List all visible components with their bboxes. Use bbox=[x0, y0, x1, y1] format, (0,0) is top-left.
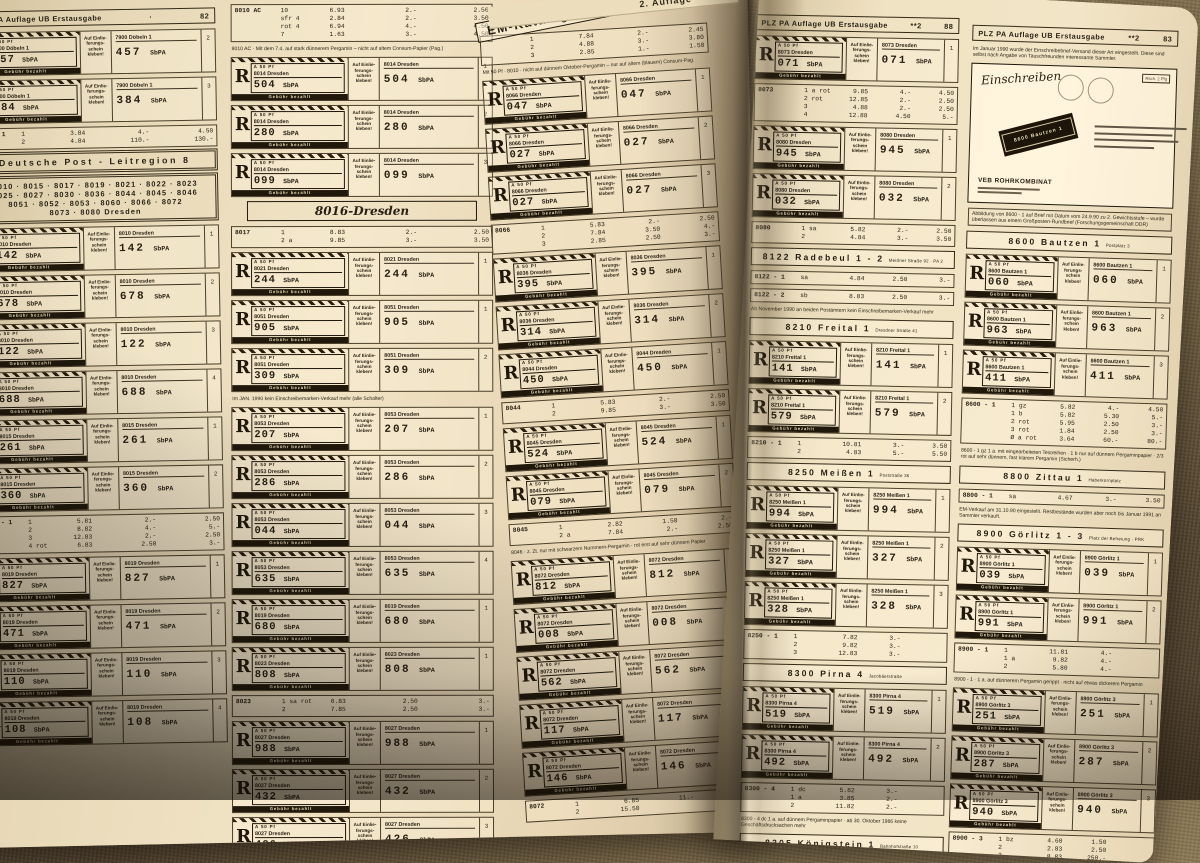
price-rows: 12.821.502.-2 a7.842.-2.50 bbox=[559, 514, 734, 540]
copy-city: 8045 Dresden bbox=[641, 421, 713, 432]
price-grade: 2 a bbox=[559, 530, 591, 540]
grade-mark: 4 bbox=[479, 552, 493, 594]
label-copy: 8036 Dresden314 SbPA bbox=[629, 295, 711, 342]
label-rate: A 50 Pf bbox=[0, 378, 79, 384]
section-heading: 8800 Zittau 1 Haberkornplatz bbox=[959, 465, 1165, 489]
price-mint: 3.- bbox=[1072, 494, 1116, 503]
label-number: 027 SbPA bbox=[512, 194, 585, 209]
copy-unit: SbPA bbox=[419, 837, 435, 844]
registration-label: RA 50 Pf8036 Dresden314 SbPAGebühr bezah… bbox=[497, 302, 601, 350]
left-column-3: EM-Katalogisierung**2 8817.842.-2.4524.8… bbox=[478, 0, 755, 843]
copy-number: 457 SbPA bbox=[116, 46, 197, 59]
price-grade: sa bbox=[1009, 493, 1041, 502]
label-number: 287 SbPA bbox=[973, 759, 1036, 772]
catalog-entry: RA 50 Pf7900 Döbeln 1384 SbPAGebühr beza… bbox=[0, 76, 217, 124]
price-table: 8015 - 115.812.-2.5028.824.-5.-312.832.-… bbox=[0, 512, 225, 554]
price-mint: 2.50 bbox=[92, 540, 156, 549]
label-face: A 50 Pf8300 Pirna 4519 SbPA bbox=[762, 692, 830, 723]
price-rows: 1 a rot9.854.-4.502 rot12.852.-2.5034.88… bbox=[804, 87, 955, 122]
address-lines bbox=[1094, 126, 1191, 155]
copy-unit: SbPA bbox=[154, 293, 170, 300]
registration-label: RA 50 Pf8051 Dresden309 SbPAGebühr bezah… bbox=[232, 349, 349, 391]
copy-city: 8080 Dresden bbox=[880, 133, 938, 141]
postmark-circle bbox=[1087, 77, 1114, 104]
r-letter: R bbox=[236, 559, 251, 587]
grade-mark: 2 bbox=[1145, 601, 1160, 643]
r-letter: R bbox=[235, 260, 250, 288]
grade-mark: 1 bbox=[715, 416, 731, 459]
section-subtitle: Bahnhofstraße 10 bbox=[880, 844, 918, 850]
page-header: PLZ PA Auflage UB Erstausgabe**288 bbox=[755, 14, 959, 34]
catalog-entry: RA 50 Pf8036 Dresden395 SbPAGebühr bezah… bbox=[493, 245, 723, 302]
copy-unit: SbPA bbox=[907, 508, 923, 515]
registration-label: RA 50 Pf8900 Görlitz 3287 SbPAGebühr bez… bbox=[951, 736, 1044, 781]
grade-mark: 2 bbox=[478, 349, 492, 391]
copy-city: 8014 Dresden bbox=[384, 110, 474, 117]
price-rows: sa4.673.-3.50 bbox=[1009, 493, 1161, 506]
label-unit: SbPA bbox=[26, 252, 42, 259]
label-paid-bar: Gebühr bezahlt bbox=[233, 758, 349, 764]
catalog-entry: RA 50 Pf8010 Dresden122 SbPAGebühr bezah… bbox=[0, 320, 221, 368]
copy-unit: SbPA bbox=[159, 575, 175, 582]
copy-unit: SbPA bbox=[419, 368, 435, 375]
copy-number: 812 SbPA bbox=[649, 566, 721, 582]
copy-number: 309 SbPA bbox=[384, 365, 474, 377]
catalog-entry: RA 50 Pf8010 Dresden142 SbPAGebühr bezah… bbox=[0, 224, 220, 272]
registration-label-tilted: 8600 Bautzen 1 bbox=[998, 113, 1078, 157]
price-date: 7.85 bbox=[314, 706, 346, 714]
registration-label: RA 50 Pf8044 Dresden450 SbPAGebühr bezah… bbox=[499, 350, 603, 398]
copy-city: 8072 Dresden bbox=[648, 554, 720, 565]
price-code: 8080 bbox=[755, 224, 801, 241]
catalog-entry: RA 50 Pf8036 Dresden314 SbPAGebühr bezah… bbox=[496, 293, 726, 350]
copy-unit: SbPA bbox=[684, 570, 700, 578]
copy-unit: SbPA bbox=[151, 97, 167, 104]
price-grade: 10 bbox=[281, 7, 313, 15]
label-city: 8053 Dresden bbox=[254, 469, 342, 476]
label-number: 286 SbPA bbox=[254, 478, 342, 489]
grade-mark: 2 bbox=[210, 603, 225, 645]
sticker-instruction: Auf Einlie- ferungs- schein kleben! bbox=[349, 408, 380, 450]
registration-label: RA 50 Pf8073 Dresden071 SbPAGebühr bezah… bbox=[755, 36, 847, 80]
sticker-instruction: Auf Einlie- ferungs- schein kleben! bbox=[85, 275, 117, 318]
catalog-entry: RA 50 Pf8019 Dresden680 SbPAGebühr bezah… bbox=[232, 599, 494, 643]
catalog-entry: RA 50 Pf8053 Dresden635 SbPAGebühr bezah… bbox=[232, 551, 494, 595]
label-unit: SbPA bbox=[549, 328, 565, 336]
catalog-entry: RA 50 Pf8600 Bautzen 1963 SbPAGebühr bez… bbox=[963, 302, 1170, 352]
registration-label: RA 50 Pf8300 Pirna 4519 SbPAGebühr bezah… bbox=[743, 687, 835, 731]
registration-label: RA 50 Pf8900 Görlitz 3251 SbPAGebühr bez… bbox=[953, 688, 1046, 733]
page-right: PLZ PA Auflage UB Erstausgabe**288RA 50 … bbox=[713, 0, 1199, 863]
catalog-entry: RA 50 Pf8900 Görlitz 3287 SbPAGebühr bez… bbox=[950, 735, 1157, 785]
copy-city: 8900 Görlitz 3 bbox=[1079, 744, 1138, 753]
label-unit: SbPA bbox=[284, 432, 300, 439]
label-unit: SbPA bbox=[1003, 762, 1019, 769]
copy-city: 8014 Dresden bbox=[384, 62, 474, 69]
registration-label: RA 50 Pf8036 Dresden395 SbPAGebühr bezah… bbox=[494, 254, 598, 302]
label-unit: SbPA bbox=[284, 624, 300, 631]
price-used: 3.50 bbox=[908, 235, 951, 244]
copy-number: 940 SbPA bbox=[1077, 804, 1137, 818]
grade-mark: 2 bbox=[200, 29, 215, 71]
copy-number: 471 SbPA bbox=[126, 620, 207, 633]
label-copy: 8045 Dresden524 SbPA bbox=[636, 417, 718, 464]
copy-number: 827 SbPA bbox=[125, 572, 206, 585]
label-paid-bar: Gebühr bezahlt bbox=[951, 772, 1042, 781]
label-face: A 50 Pf8053 Dresden207 SbPA bbox=[251, 413, 345, 443]
catalog-entry: RA 50 Pf8072 Dresden562 SbPAGebühr bezah… bbox=[516, 644, 746, 701]
sticker-instruction: Auf Einlie- ferungs- schein kleben! bbox=[836, 584, 868, 627]
price-row: 27.852.503.- bbox=[282, 706, 490, 714]
price-date: 3.64 bbox=[1042, 435, 1074, 444]
label-number: 450 SbPA bbox=[523, 372, 596, 387]
copy-city: 8900 Görlitz 1 bbox=[1083, 603, 1142, 612]
price-row: 71.633.-4.50 bbox=[281, 31, 489, 39]
label-city: 8053 Dresden bbox=[255, 565, 343, 572]
r-letter: R bbox=[748, 589, 764, 617]
label-unit: SbPA bbox=[23, 104, 39, 111]
label-paid-bar: Gebühr bezahlt bbox=[233, 588, 349, 594]
sender-line bbox=[978, 187, 1040, 191]
label-copy: 8023 Dresden808 SbPA bbox=[381, 648, 479, 690]
grade-mark: 3 bbox=[206, 321, 221, 363]
price-mint: 5.- bbox=[861, 449, 904, 458]
label-rate: A 50 Pf bbox=[771, 396, 833, 402]
copy-unit: SbPA bbox=[157, 437, 173, 444]
grade-mark: 1 bbox=[478, 301, 492, 343]
label-paid-bar: Gebühr bezahlt bbox=[232, 492, 348, 498]
registration-label: RA 50 Pf8250 Meißen 1327 SbPAGebühr beza… bbox=[746, 534, 838, 578]
label-number: 027 SbPA bbox=[509, 146, 582, 161]
label-city: 8019 Dresden bbox=[255, 613, 343, 620]
price-table: 7900 - 113.844.-4.5024.84110.-130.- bbox=[0, 124, 218, 150]
price-mint: 2.50 bbox=[346, 698, 418, 706]
handwritten-einschreiben: Einschreiben bbox=[981, 69, 1062, 88]
label-number: 207 SbPA bbox=[254, 430, 342, 441]
copy-unit: SbPA bbox=[418, 77, 434, 84]
copy-unit: SbPA bbox=[910, 363, 926, 370]
copy-unit: SbPA bbox=[1118, 571, 1134, 578]
copy-number: 142 SbPA bbox=[119, 242, 200, 255]
price-code: 8305 bbox=[743, 859, 789, 863]
label-face: A 50 Pf8010 Dresden688 SbPA bbox=[0, 377, 83, 409]
price-rows: 1 bz4.601.5022.832.5038.83250.- bbox=[998, 836, 1151, 863]
catalog-entry: RA 50 Pf8066 Dresden027 SbPAGebühr bezah… bbox=[488, 163, 718, 220]
copy-unit: SbPA bbox=[689, 666, 705, 674]
price-mint: 2.50 bbox=[346, 706, 418, 714]
grade-mark: 1 bbox=[204, 225, 219, 267]
label-face: A 50 Pf8036 Dresden395 SbPA bbox=[513, 259, 593, 294]
copy-unit: SbPA bbox=[906, 556, 922, 563]
catalog-entry: RA 50 Pf8900 Görlitz 3940 SbPAGebühr bez… bbox=[949, 783, 1156, 833]
label-paid-bar: Gebühr bezahlt bbox=[232, 444, 348, 450]
copy-unit: SbPA bbox=[419, 741, 435, 748]
label-city: 8250 Meißen 1 bbox=[767, 596, 829, 604]
label-copy: 8014 Dresden504 SbPA bbox=[380, 58, 478, 100]
label-paid-bar: Gebühr bezahlt bbox=[232, 94, 348, 100]
copy-number: 492 SbPA bbox=[868, 754, 926, 767]
registration-label: RA 50 Pf8600 Bautzen 1060 SbPAGebühr bez… bbox=[966, 255, 1059, 300]
copy-number: 562 SbPA bbox=[655, 662, 727, 678]
label-face: A 50 Pf8010 Dresden678 SbPA bbox=[0, 281, 81, 313]
catalog-entry: RA 50 Pf8900 Görlitz 1039 SbPAGebühr bez… bbox=[956, 546, 1163, 596]
registration-label: RA 50 Pf8072 Dresden562 SbPAGebühr bezah… bbox=[517, 652, 621, 700]
label-unit: SbPA bbox=[567, 630, 583, 638]
copy-unit: SbPA bbox=[655, 90, 671, 98]
copy-city: 8080 Dresden bbox=[879, 181, 937, 189]
price-rows: 110.813.-3.5024.835.-5.50 bbox=[797, 440, 947, 459]
r-letter: R bbox=[235, 161, 250, 189]
price-used bbox=[897, 804, 940, 813]
sticker-instruction: Auf Einlie- ferungs- schein kleben! bbox=[349, 301, 380, 343]
r-letter: R bbox=[236, 777, 251, 805]
label-number: 044 SbPA bbox=[254, 526, 342, 537]
copy-number: 327 SbPA bbox=[872, 553, 930, 566]
copy-unit: SbPA bbox=[686, 618, 702, 626]
label-unit: SbPA bbox=[793, 760, 809, 767]
catalog-entry: RA 50 Pf8210 Freital 1141 SbPAGebühr bez… bbox=[748, 340, 953, 388]
label-number: 384 SbPA bbox=[0, 102, 75, 114]
price-grade: 2 bbox=[790, 802, 822, 811]
price-grade: 4 bbox=[804, 111, 836, 120]
price-code: 8044 bbox=[505, 403, 552, 422]
catalog-entry: RA 50 Pf8015 Dresden261 SbPAGebühr bezah… bbox=[0, 416, 223, 464]
catalog-entry: RA 50 Pf8300 Pirna 4519 SbPAGebühr bezah… bbox=[742, 686, 947, 734]
copy-city: 7900 Döbeln 1 bbox=[116, 82, 197, 90]
price-date: 2.85 bbox=[574, 237, 606, 247]
copy-unit: SbPA bbox=[419, 427, 435, 434]
sticker-instruction: Auf Einlie- ferungs- schein kleben! bbox=[350, 722, 381, 764]
sticker-instruction: Auf Einlie- ferungs- schein kleben! bbox=[1047, 598, 1079, 641]
r-letter: R bbox=[236, 655, 251, 683]
section-subtitle: Postplatz 3 bbox=[1106, 243, 1130, 249]
label-rate: A 50 Pf bbox=[4, 708, 85, 714]
copy-unit: SbPA bbox=[1124, 375, 1140, 382]
sticker-instruction: Auf Einlie- ferungs- schein kleben! bbox=[1042, 787, 1074, 830]
catalog-entry: RA 50 Pf8045 Dresden524 SbPAGebühr bezah… bbox=[503, 415, 733, 472]
price-mint: 4.- bbox=[1067, 665, 1111, 674]
copy-number: 994 SbPA bbox=[873, 505, 931, 518]
copy-city: 8053 Dresden bbox=[384, 412, 474, 419]
price-grade: 2 a bbox=[281, 237, 313, 245]
label-paid-bar: Gebühr bezahlt bbox=[950, 820, 1041, 829]
label-copy: 8250 Meißen 1327 SbPA bbox=[868, 536, 935, 579]
label-paid-bar: Gebühr bezahlt bbox=[953, 724, 1044, 733]
label-face: A 50 Pf8053 Dresden635 SbPA bbox=[252, 557, 346, 587]
copy-unit: SbPA bbox=[155, 341, 171, 348]
copy-city: 8900 Görlitz 3 bbox=[1080, 696, 1139, 705]
grade-mark: 2 bbox=[930, 739, 945, 781]
grade-mark: 1 bbox=[479, 600, 493, 642]
label-face: A 50 Pf8900 Görlitz 3287 SbPA bbox=[970, 742, 1040, 774]
label-copy: 8900 Görlitz 1039 SbPA bbox=[1080, 551, 1148, 595]
r-letter: R bbox=[959, 602, 975, 630]
registration-label: RA 50 Pf8015 Dresden360 SbPAGebühr bezah… bbox=[0, 468, 89, 512]
section-subtitle: Platz der Befreiung · PRK bbox=[1089, 535, 1144, 542]
page-header-mark: **2 bbox=[910, 21, 921, 30]
sticker-instruction: Auf Einlie- ferungs- schein kleben! bbox=[837, 536, 869, 579]
copy-number: 044 SbPA bbox=[385, 520, 475, 532]
sticker-instruction: Auf Einlie- ferungs- schein kleben! bbox=[622, 698, 655, 742]
label-paid-bar: Gebühr bezahlt bbox=[753, 210, 843, 218]
price-used: 3.- bbox=[156, 539, 220, 548]
r-letter: R bbox=[953, 791, 969, 819]
copy-unit: SbPA bbox=[913, 196, 929, 203]
r-letter: R bbox=[756, 181, 772, 209]
price-grade: 7 bbox=[281, 31, 313, 39]
grade-mark: 1 bbox=[478, 253, 492, 295]
sticker-instruction: Auf Einlie- ferungs- schein kleben! bbox=[349, 456, 380, 498]
copy-unit: SbPA bbox=[909, 411, 925, 418]
copy-city: 8014 Dresden bbox=[384, 158, 474, 165]
price-date: 9.85 bbox=[584, 407, 616, 417]
label-paid-bar: Gebühr bezahlt bbox=[957, 583, 1048, 592]
label-face: A 50 Pf8210 Freital 1141 SbPA bbox=[769, 347, 837, 378]
r-letter: R bbox=[235, 356, 250, 384]
page-number: 82 bbox=[200, 11, 209, 20]
label-city: 7900 Döbeln 1 bbox=[0, 93, 74, 101]
grade-mark: 3 bbox=[211, 651, 226, 693]
copy-city: 8072 Dresden bbox=[651, 602, 723, 613]
label-unit: SbPA bbox=[284, 746, 300, 753]
label-unit: SbPA bbox=[284, 672, 300, 679]
price-mint: 3.- bbox=[865, 234, 908, 243]
label-unit: SbPA bbox=[284, 842, 300, 848]
label-paid-bar: Gebühr bezahlt bbox=[963, 387, 1054, 396]
copy-number: 411 SbPA bbox=[1090, 371, 1150, 385]
label-number: 680 SbPA bbox=[255, 622, 343, 633]
label-paid-bar: Gebühr bezahlt bbox=[233, 806, 349, 812]
price-table: 8210 - 1110.813.-3.5024.835.-5.50 bbox=[747, 436, 951, 462]
registration-label: RA 50 Pf8066 Dresden027 SbPAGebühr bezah… bbox=[489, 172, 593, 220]
label-unit: SbPA bbox=[283, 82, 299, 89]
grade-mark: 2 bbox=[208, 465, 223, 507]
page-number: 88 bbox=[944, 21, 953, 30]
price-date: 6.83 bbox=[60, 542, 92, 551]
label-copy: 8053 Dresden044 SbPA bbox=[380, 504, 478, 546]
registration-label: RA 50 Pf8066 Dresden027 SbPAGebühr bezah… bbox=[486, 124, 590, 172]
label-rate: A 50 Pf bbox=[775, 181, 837, 187]
label-number: 457 SbPA bbox=[0, 54, 74, 66]
label-unit: SbPA bbox=[798, 511, 814, 518]
copy-city: 8300 Pirna 4 bbox=[868, 742, 926, 750]
price-used: 3.- bbox=[418, 698, 490, 706]
price-rows: 1 gz5.824.-4.501 b5.825.305.-2 rot5.952.… bbox=[1010, 402, 1163, 446]
label-paid-bar: Gebühr bezahlt bbox=[0, 312, 84, 320]
label-rate: A 50 Pf bbox=[255, 606, 343, 611]
label-city: 8051 Dresden bbox=[254, 314, 342, 321]
section-heading: 8900 Görlitz 1 - 3 Platz der Befreiung ·… bbox=[957, 523, 1163, 547]
label-rate: A 50 Pf bbox=[3, 660, 84, 666]
copy-number: 108 SbPA bbox=[127, 716, 208, 729]
copy-unit: SbPA bbox=[1117, 619, 1133, 626]
copy-unit: SbPA bbox=[1111, 808, 1127, 815]
label-number: 110 SbPA bbox=[4, 676, 85, 688]
copy-city: 8600 Bautzen 1 bbox=[1093, 263, 1152, 272]
label-face: A 50 Pf7900 Döbeln 1457 SbPA bbox=[0, 37, 77, 69]
price-code: 8900 - 1 bbox=[957, 645, 1004, 670]
label-number: 071 SbPA bbox=[777, 59, 839, 71]
section-subtitle: Haberkornplatz bbox=[1088, 477, 1121, 483]
label-unit: SbPA bbox=[541, 198, 557, 206]
price-table: 8250 - 117.823.-29.823.-312.833.- bbox=[743, 629, 948, 663]
label-face: A 50 Pf8072 Dresden117 SbPA bbox=[540, 705, 620, 740]
copy-city: 8250 Meißen 1 bbox=[872, 541, 930, 549]
price-date: 7.84 bbox=[591, 529, 623, 539]
copy-unit: SbPA bbox=[1114, 712, 1130, 719]
label-number: 060 SbPA bbox=[988, 278, 1051, 291]
price-rows: sa4.842.503.- bbox=[800, 274, 950, 285]
copy-number: 060 SbPA bbox=[1093, 275, 1153, 289]
catalog-entry: RA 50 Pf8073 Dresden071 SbPAGebühr bezah… bbox=[754, 35, 959, 83]
price-mint: 4.- bbox=[345, 23, 417, 31]
underlying-page-title: 2. Auflage bbox=[639, 0, 692, 9]
label-unit: SbPA bbox=[804, 199, 820, 206]
label-number: 988 SbPA bbox=[255, 744, 343, 755]
registration-label: RA 50 Pf8019 Dresden680 SbPAGebühr bezah… bbox=[233, 600, 350, 642]
price-mint: 250.- bbox=[1062, 854, 1106, 863]
r-letter: R bbox=[500, 314, 517, 343]
label-number: 146 SbPA bbox=[546, 770, 619, 785]
catalog-entry: RA 50 Pf8300 Pirna 4492 SbPAGebühr bezah… bbox=[741, 734, 946, 782]
registration-label: RA 50 Pf8014 Dresden280 SbPAGebühr bezah… bbox=[232, 106, 349, 148]
label-number: 122 SbPA bbox=[0, 346, 79, 358]
price-table: 8900 - 1111.814.-1 a9.824.-25.804.- bbox=[953, 642, 1160, 678]
label-face: A 50 Pf8051 Dresden309 SbPA bbox=[251, 354, 345, 384]
r-letter: R bbox=[524, 712, 541, 741]
grade-mark: 2 bbox=[1154, 309, 1169, 351]
catalog-entry: RA 50 Pf8051 Dresden905 SbPAGebühr bezah… bbox=[231, 300, 493, 344]
copy-city: 7900 Döbeln 1 bbox=[115, 34, 196, 42]
sticker-instruction: Auf Einlie- ferungs- schein kleben! bbox=[834, 689, 866, 732]
label-number: 991 SbPA bbox=[978, 618, 1041, 631]
copy-unit: SbPA bbox=[419, 667, 435, 674]
grade-mark: 1 bbox=[1143, 694, 1158, 736]
left-page-columns: PLZ PA Auflage UB Erstausgabe·82RA 50 Pf… bbox=[0, 0, 755, 848]
label-rate: A 50 Pf bbox=[768, 541, 830, 547]
registration-label: RA 50 Pf8027 Dresden426 SbPAGebühr bezah… bbox=[233, 818, 350, 848]
label-face: A 50 Pf8019 Dresden471 SbPA bbox=[0, 611, 87, 643]
registration-label: RA 50 Pf8053 Dresden207 SbPAGebühr bezah… bbox=[232, 408, 349, 450]
copy-unit: SbPA bbox=[914, 148, 930, 155]
price-code: 8045 bbox=[513, 524, 560, 543]
label-number: 079 SbPA bbox=[530, 494, 603, 509]
sticker-instruction: Auf Einlie- ferungs- schein kleben! bbox=[91, 653, 123, 696]
label-copy: 8045 Dresden079 SbPA bbox=[639, 465, 721, 512]
grade-mark: 1 bbox=[479, 648, 493, 690]
copy-unit: SbPA bbox=[658, 138, 674, 146]
copy-number: 963 SbPA bbox=[1091, 323, 1151, 337]
sticker-instruction: Auf Einlie- ferungs- schein kleben! bbox=[833, 737, 865, 780]
copy-city: 8010 Dresden bbox=[120, 326, 201, 334]
catalog-entry: RA 50 Pf8051 Dresden309 SbPAGebühr bezah… bbox=[231, 348, 493, 392]
catalog-entry: RA 50 Pf8900 Görlitz 1991 SbPAGebühr bez… bbox=[954, 594, 1161, 644]
address-line bbox=[1094, 139, 1178, 143]
r-letter: R bbox=[510, 483, 527, 512]
address-line bbox=[1095, 126, 1187, 131]
copy-city: 8019 Dresden bbox=[125, 608, 206, 616]
section-subtitle: Dresdner Straße 41 bbox=[875, 328, 917, 334]
copy-city: 8072 Dresden bbox=[657, 698, 729, 709]
page-header-title: PLZ PA Auflage UB Erstausgabe bbox=[978, 28, 1105, 41]
price-grade: 2 bbox=[797, 448, 829, 457]
price-rows: sb8.832.503.- bbox=[800, 292, 950, 303]
label-unit: SbPA bbox=[30, 492, 46, 499]
copy-city: 8019 Dresden bbox=[125, 560, 206, 568]
grade-mark: 2 bbox=[1141, 742, 1156, 784]
r-letter: R bbox=[757, 133, 773, 161]
registration-label: RA 50 Pf8019 Dresden108 SbPAGebühr bezah… bbox=[0, 702, 93, 746]
